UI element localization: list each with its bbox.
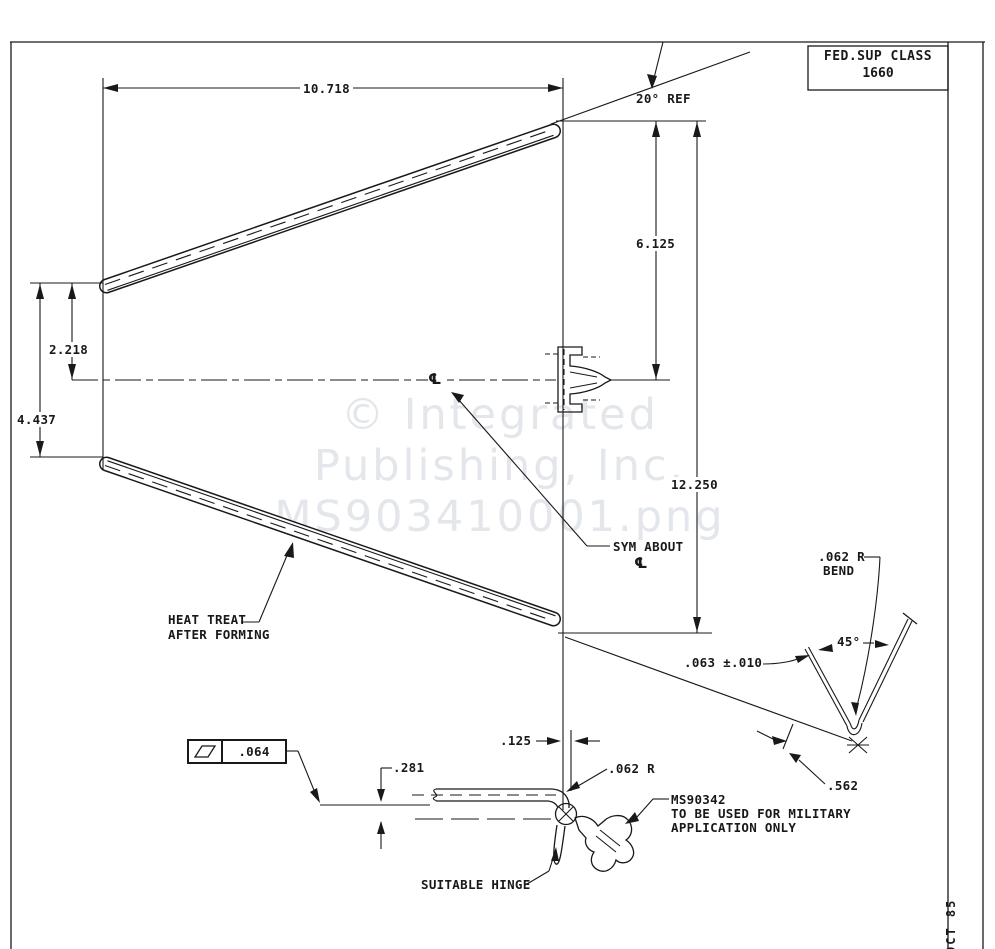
hinge-detail (527, 799, 669, 884)
hinge-spec-note-line1: MS90342 (671, 792, 726, 807)
corner-radius-label: .062 R (608, 761, 655, 776)
cone-body (103, 78, 563, 810)
edge-offset-dimension (536, 737, 600, 745)
bend-radius-label-line2: BEND (823, 563, 854, 578)
flatness-tolerance-value: .064 (224, 744, 284, 759)
heat-treat-leader (241, 542, 294, 622)
sym-about-label: SYM ABOUT (613, 539, 683, 554)
fed-sup-class-label: FED.SUP CLASS (808, 49, 948, 64)
corner-radius-leader (566, 769, 607, 792)
bend-angle-label: 45° (834, 634, 863, 649)
heat-treat-note-line2: AFTER FORMING (168, 627, 270, 642)
left-half-height-dimension-label: 2.218 (46, 342, 91, 357)
flatness-symbol (195, 746, 215, 757)
drawing-sheet: © Integrated Publishing, Inc. MS90341000… (0, 0, 995, 949)
suitable-hinge-label: SUITABLE HINGE (421, 877, 531, 892)
sym-about-leader (451, 392, 610, 546)
right-opening-dimension-label: 12.250 (668, 477, 721, 492)
sym-about-centerline-icon: ℄ (634, 554, 648, 572)
bend-leg-length-label: .562 (827, 778, 858, 793)
centerline-marker-icon: ℄ (428, 370, 442, 388)
flange-gap-dimension-label: .281 (393, 760, 424, 775)
hinge-spec-note-line2: TO BE USED FOR MILITARY (671, 806, 851, 821)
fed-sup-class-value: 1660 (808, 66, 948, 81)
material-thickness-label: .063 ±.010 (684, 655, 762, 670)
bend-radius-label-line1: .062 R (818, 549, 865, 564)
right-half-height-dimension-label: 6.125 (633, 236, 678, 251)
margin-date-note: OCT 85 (944, 899, 958, 949)
edge-offset-dimension-label: .125 (500, 733, 531, 748)
hinge-spec-note-line3: APPLICATION ONLY (671, 820, 796, 835)
overall-length-dimension-label: 10.718 (300, 81, 353, 96)
heat-treat-note-line1: HEAT TREAT (168, 612, 246, 627)
angle-ref-label: 20° REF (636, 91, 691, 106)
left-opening-dimension-label: 4.437 (14, 412, 59, 427)
bend-detail (565, 557, 917, 784)
flange-gap-dimension (377, 768, 392, 849)
